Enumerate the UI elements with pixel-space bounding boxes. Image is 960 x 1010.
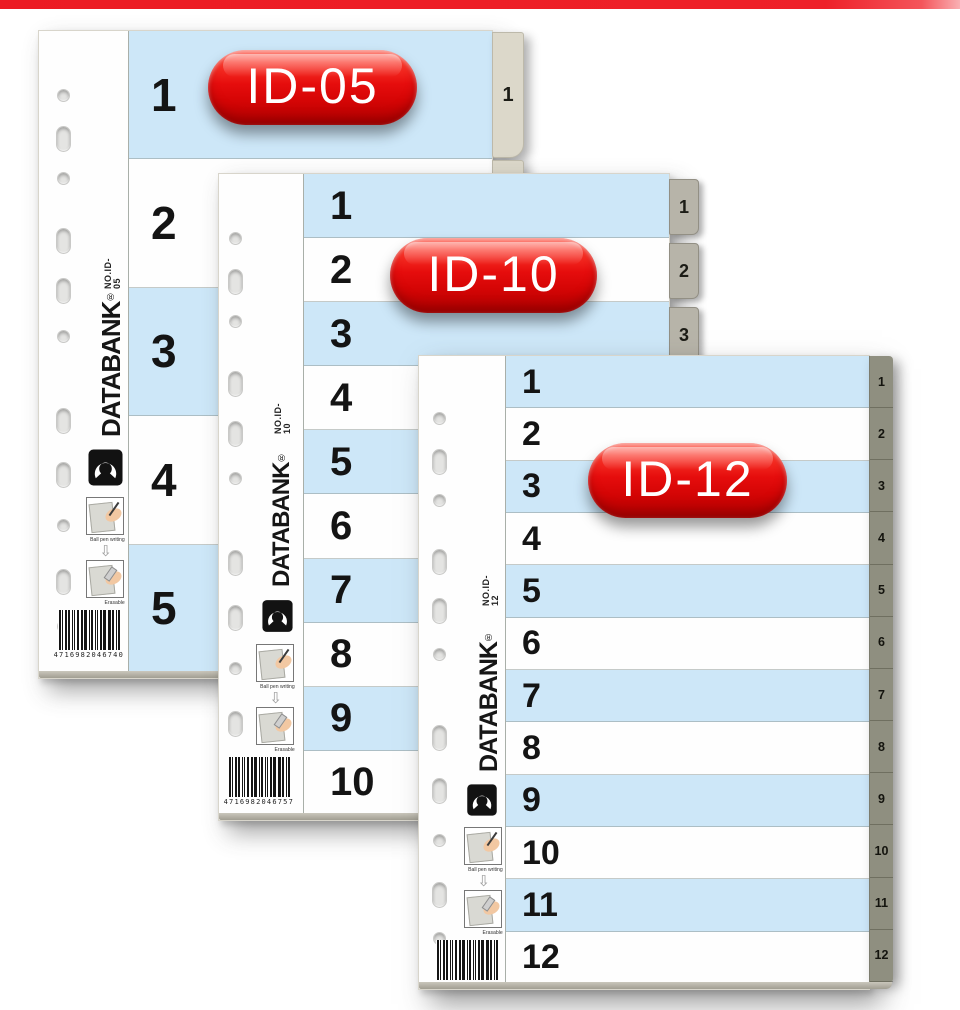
figure-caption: Erasable [105,600,125,605]
figure-caption: Ball pen writing [260,684,295,689]
erasable-figure [256,707,294,745]
barcode-digits: 4716982046757 [224,798,294,806]
index-tab: 1 [870,356,893,408]
brand-name: DATABANK [475,642,503,772]
index-row: 8 [506,722,869,774]
index-tab: 10 [870,825,893,877]
index-tab: 7 [870,669,893,721]
index-tab: 6 [870,617,893,669]
barcode-bars [436,940,498,980]
punch-hole [57,89,70,102]
row-number-label: 6 [304,506,352,546]
ball-pen-writing-figure [464,827,502,865]
punch-hole [229,315,242,328]
index-row: 12 [506,932,869,982]
sheet-bottom-edge [419,982,892,989]
row-number-label: 5 [304,442,352,482]
index-row: 9 [506,775,869,827]
badge-label: ID-10 [427,245,559,307]
down-arrow-icon: ⇩ [269,691,282,706]
index-tab: 9 [870,773,893,825]
model-number: NO.ID-10 [274,396,292,434]
figure-caption: Ball pen writing [90,537,125,542]
row-number-label: 8 [304,634,352,674]
row-number-label: 4 [129,457,177,503]
index-row: 11 [506,879,869,931]
index-tab: 11 [870,878,893,930]
row-number-label: 3 [506,469,541,503]
row-number-label: 2 [304,250,352,290]
row-number-label: 11 [506,888,558,922]
brand-logo-text: DATABANK® [477,614,502,772]
row-number-label: 3 [304,314,352,354]
branding-cluster: NO.ID-12 DATABANK® Ball pen writing ⇩ Er… [419,568,505,989]
index-row: 1 [304,174,669,238]
row-number-label: 10 [304,762,375,802]
top-red-bar [0,0,960,9]
barcode-bars [58,610,120,650]
branding-cluster: NO.ID-05 DATABANK® Ball pen writing ⇩ Er… [39,251,128,659]
row-number-label: 5 [129,585,177,631]
row-number-label: 10 [506,836,560,870]
punch-hole [228,269,243,295]
row-number-label: 5 [506,574,541,608]
barcode: 4716982046757 [224,757,294,806]
brand-name: DATABANK [268,463,295,587]
tab-edge: 123456789101112 [869,356,893,982]
barcode: 4716982046740 [54,610,124,659]
badge-id-05: ID-05 [208,50,417,125]
index-row: 10 [506,827,869,879]
index-row: 7 [506,670,869,722]
row-number-label: 7 [506,679,541,713]
row-number-label: 2 [129,200,177,246]
databank-d-icon [463,784,501,816]
figure-caption: Erasable [483,930,503,935]
row-number-label: 4 [506,522,541,556]
brand-logo-text: DATABANK® [270,442,294,587]
row-number-label: 12 [506,940,560,974]
punch-hole-column: NO.ID-12 DATABANK® Ball pen writing ⇩ Er… [419,356,506,982]
erasable-figure [464,890,502,928]
row-number-label: 1 [129,72,177,118]
index-tab: 4 [870,512,893,564]
badge-id-10: ID-10 [390,238,597,313]
row-number-label: 9 [506,783,541,817]
punch-hole [228,371,243,397]
row-number-label: 4 [304,378,352,418]
figure-caption: Erasable [275,747,295,752]
index-tab: 1 [492,32,524,158]
punch-hole [56,126,71,152]
registered-mark: ® [276,453,287,463]
brand-name: DATABANK [96,302,126,437]
row-number-label: 2 [506,417,541,451]
down-arrow-icon: ⇩ [477,874,490,889]
punch-hole [433,494,446,507]
ball-pen-writing-figure [86,497,124,535]
punch-hole [229,232,242,245]
row-number-label: 3 [129,328,177,374]
brand-logo-text: DATABANK® [98,297,124,437]
punch-hole-column: NO.ID-10 DATABANK® Ball pen writing ⇩ Er… [219,174,304,813]
badge-label: ID-12 [621,450,753,512]
badge-label: ID-05 [246,57,378,119]
model-number: NO.ID-05 [104,251,122,289]
erasable-figure [86,560,124,598]
index-tab: 8 [870,721,893,773]
row-number-label: 1 [304,186,352,226]
index-tab: 2 [669,243,699,299]
databank-d-icon [262,599,293,633]
punch-hole-column: NO.ID-05 DATABANK® Ball pen writing ⇩ Er… [39,31,129,671]
barcode-bars [228,757,290,797]
row-number-label: 7 [304,570,352,610]
branding-cluster: NO.ID-10 DATABANK® Ball pen writing ⇩ Er… [219,396,303,806]
index-tab: 2 [870,408,893,460]
registered-mark: ® [483,632,494,642]
index-row: 5 [506,565,869,617]
punch-hole [432,449,447,475]
down-arrow-icon: ⇩ [99,544,112,559]
barcode-digits: 4716982046740 [54,651,124,659]
databank-d-icon [88,449,123,486]
index-tab: 3 [870,460,893,512]
index-tab: 5 [870,565,893,617]
model-number: NO.ID-12 [482,568,500,606]
ball-pen-writing-figure [256,644,294,682]
product-photo-canvas: NO.ID-05 DATABANK® Ball pen writing ⇩ Er… [0,0,960,1010]
row-number-label: 6 [506,626,541,660]
index-row: 6 [506,618,869,670]
index-row: 4 [506,513,869,565]
index-row: 1 [506,356,869,408]
index-tab: 1 [669,179,699,235]
badge-id-12: ID-12 [588,443,787,518]
registered-mark: ® [105,292,116,302]
row-number-label: 1 [506,365,541,399]
index-tab: 12 [870,930,893,982]
punch-hole [433,412,446,425]
row-number-label: 8 [506,731,541,765]
row-number-label: 9 [304,698,352,738]
punch-hole [57,172,70,185]
figure-caption: Ball pen writing [468,867,503,872]
